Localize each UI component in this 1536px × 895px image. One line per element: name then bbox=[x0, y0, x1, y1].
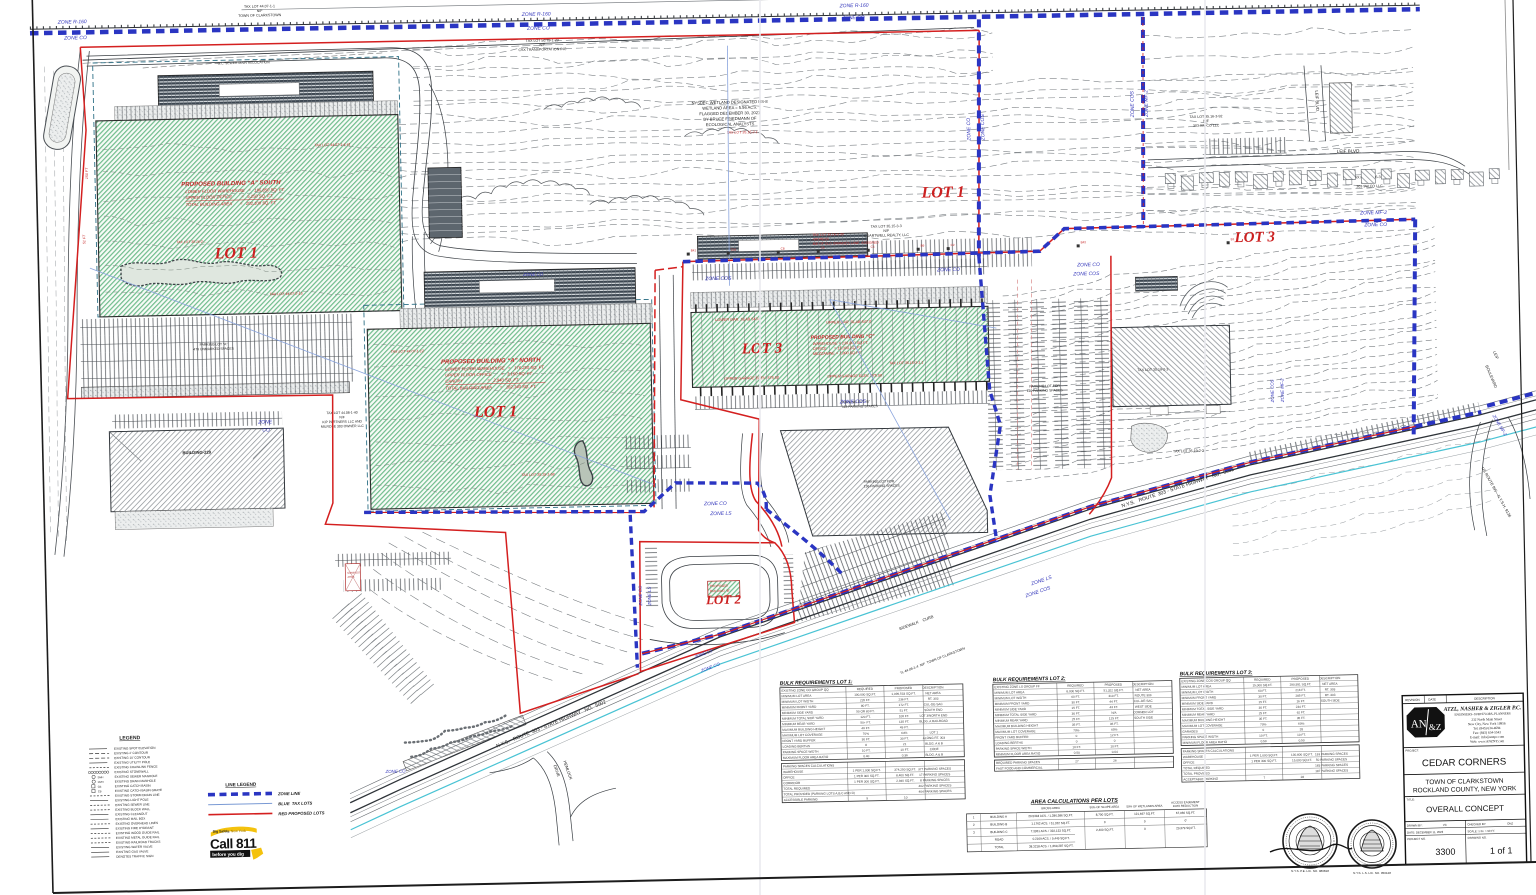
svg-text:216 FT.: 216 FT. bbox=[1295, 688, 1306, 692]
svg-text:DESCRIPTION: DESCRIPTION bbox=[1319, 676, 1340, 680]
svg-text:16 FT.: 16 FT. bbox=[1296, 699, 1305, 703]
svg-text:310 FT.: 310 FT. bbox=[1108, 694, 1119, 698]
svg-text:DRAWN BY:: DRAWN BY: bbox=[1407, 823, 1423, 827]
svg-text:290,951 SQ.FT.: 290,951 SQ.FT. bbox=[1290, 682, 1312, 686]
svg-text:CUL-DE-SAC: CUL-DE-SAC bbox=[1134, 699, 1154, 703]
svg-text:TOTAL REQUIRED: TOTAL REQUIRED bbox=[1183, 766, 1211, 771]
svg-text:N.Y.S. P.E. LIC. NO. 080818: N.Y.S. P.E. LIC. NO. 080818 bbox=[1291, 869, 1329, 873]
svg-text:BLUE TAX LOTS: BLUE TAX LOTS bbox=[278, 801, 312, 807]
svg-text:TAX LOT 44.07-2-15: TAX LOT 44.07-2-15 bbox=[269, 292, 302, 297]
svg-text:MINIMUM LOT WIDTH: MINIMUM LOT WIDTH bbox=[995, 696, 1027, 701]
svg-text:1 PER 300 SQ.FT.: 1 PER 300 SQ.FT. bbox=[854, 779, 880, 784]
svg-text:MINIMUM SIDE YARD: MINIMUM SIDE YARD bbox=[782, 710, 814, 715]
svg-text:ZONE CO: ZONE CO bbox=[1076, 262, 1100, 268]
svg-text:1.1762 ACS. / 51,322 SQ.FT.: 1.1762 ACS. / 51,322 SQ.FT. bbox=[1031, 821, 1070, 826]
svg-text:0.40: 0.40 bbox=[863, 754, 869, 758]
svg-text:OFFICE: OFFICE bbox=[1183, 760, 1194, 764]
svg-text:1 PER 1,000 SQ.FT.: 1 PER 1,000 SQ.FT. bbox=[853, 768, 881, 773]
svg-text:MAXIMUM LOT COVERAGE: MAXIMUM LOT COVERAGE bbox=[782, 733, 822, 738]
svg-text:MINIMUM LOT AREA: MINIMUM LOT AREA bbox=[1181, 684, 1212, 689]
svg-text:234 FT.: 234 FT. bbox=[1296, 705, 1307, 709]
svg-text:35 FT.: 35 FT. bbox=[1072, 723, 1081, 727]
svg-text:28: 28 bbox=[1300, 727, 1304, 731]
svg-text:Dig Safely. New York: Dig Safely. New York bbox=[213, 829, 246, 834]
svg-text:GROSS AREA: GROSS AREA bbox=[1041, 806, 1060, 810]
svg-text:10 FT.: 10 FT. bbox=[1072, 745, 1081, 749]
svg-text:10: 10 bbox=[904, 795, 908, 799]
svg-text:MINIMUM LOT AREA: MINIMUM LOT AREA bbox=[781, 694, 812, 699]
svg-text:0’: 0’ bbox=[1185, 818, 1188, 822]
svg-text:8,700 SQ.FT.: 8,700 SQ.FT. bbox=[1096, 812, 1114, 816]
svg-text:236 FT.: 236 FT. bbox=[898, 697, 909, 701]
svg-text:GARAGES: GARAGES bbox=[1182, 729, 1197, 733]
svg-text:136 PARKING SPACES: 136 PARKING SPACES bbox=[864, 484, 901, 489]
svg-text:LOT 3/NORTH END: LOT 3/NORTH END bbox=[920, 713, 949, 718]
svg-text:17 PARKING SPACES: 17 PARKING SPACES bbox=[919, 772, 950, 777]
svg-text:60 FT.: 60 FT. bbox=[1258, 689, 1267, 693]
svg-text:TAX LOT 35.16-2-...: TAX LOT 35.16-2-... bbox=[176, 240, 206, 245]
svg-text:LEGEND: LEGEND bbox=[119, 735, 140, 741]
svg-text:ACCEPTABLE PARKING: ACCEPTABLE PARKING bbox=[1183, 777, 1218, 782]
svg-text:30 FT.: 30 FT. bbox=[900, 736, 909, 740]
svg-text:LOT 1: LOT 1 bbox=[473, 403, 517, 421]
svg-text:0.50: 0.50 bbox=[1261, 739, 1267, 743]
svg-text:374,250 SQ.FT.: 374,250 SQ.FT. bbox=[894, 767, 916, 771]
svg-text:50+ FT.: 50+ FT. bbox=[860, 720, 871, 724]
svg-text:15 FT.: 15 FT. bbox=[1072, 706, 1081, 710]
svg-text:8,400 SQ.FT.: 8,400 SQ.FT. bbox=[896, 773, 914, 777]
svg-text:35 FT.: 35 FT. bbox=[1259, 717, 1268, 721]
svg-text:C8: C8 bbox=[781, 247, 785, 251]
svg-text:50% OF WETLANDS AREA: 50% OF WETLANDS AREA bbox=[1126, 804, 1162, 809]
svg-text:ZONE CO: ZONE CO bbox=[526, 25, 550, 31]
svg-text:MINIMUM LOT AREA: MINIMUM LOT AREA bbox=[994, 690, 1025, 695]
svg-text:CO: CO bbox=[262, 427, 270, 433]
svg-text:ZONE CO: ZONE CO bbox=[966, 118, 972, 142]
svg-text:43 FT.: 43 FT. bbox=[1109, 705, 1118, 709]
svg-text:29,379 SQ.FT.: 29,379 SQ.FT. bbox=[1176, 826, 1196, 830]
svg-text:MINIMUM REAR YARD: MINIMUM REAR YARD bbox=[995, 718, 1028, 723]
svg-text:LOT 1: LOT 1 bbox=[930, 730, 939, 734]
svg-text:150 FT: 150 FT bbox=[85, 167, 89, 179]
svg-text:NET AREA: NET AREA bbox=[1322, 682, 1338, 686]
svg-text:0.50: 0.50 bbox=[1299, 738, 1305, 742]
svg-text:N/F: N/F bbox=[339, 415, 345, 419]
svg-text:C4: C4 bbox=[871, 245, 875, 249]
svg-text:N/F: N/F bbox=[1203, 119, 1210, 123]
svg-text:ZONE R-160: ZONE R-160 bbox=[839, 3, 869, 10]
svg-text:125 FT.: 125 FT. bbox=[1109, 716, 1120, 720]
svg-text:NET AREA: NET AREA bbox=[925, 691, 941, 695]
svg-text:10 FT.: 10 FT. bbox=[862, 748, 871, 752]
svg-text:DESCRIPTION: DESCRIPTION bbox=[1132, 682, 1153, 686]
svg-text:51 FT: 51 FT bbox=[82, 234, 86, 244]
svg-text:10 FT.: 10 FT. bbox=[1297, 733, 1306, 737]
svg-text:WAREHOUSE: WAREHOUSE bbox=[783, 770, 803, 774]
svg-text:ZONE CO: ZONE CO bbox=[384, 769, 406, 774]
svg-text:62 FT.: 62 FT. bbox=[1297, 710, 1306, 714]
svg-text:BUILDING B: BUILDING B bbox=[990, 822, 1007, 826]
svg-text:TAX LOT 35.15-1-58: TAX LOT 35.15-1-58 bbox=[521, 472, 554, 477]
svg-text:PROJECT NO.: PROJECT NO. bbox=[1407, 837, 1426, 841]
svg-text:CB: CB bbox=[98, 789, 102, 793]
svg-text:30 FT.: 30 FT. bbox=[1072, 711, 1081, 715]
svg-text:N.Y.S. L.S. LIC. NO. 050128: N.Y.S. L.S. LIC. NO. 050128 bbox=[1353, 871, 1391, 875]
svg-text:ZONE LS: ZONE LS bbox=[647, 587, 652, 607]
svg-text:TAX LOT 35.15-2-1: TAX LOT 35.15-2-1 bbox=[727, 130, 758, 135]
svg-text:LOADING BERTHS: LOADING BERTHS bbox=[783, 744, 810, 749]
svg-text:MINIMUM REAR YARD: MINIMUM REAR YARD bbox=[1182, 712, 1215, 717]
svg-text:DATE: DATE bbox=[1428, 697, 1436, 701]
svg-text:MAXIMUM LOT COVERAGE: MAXIMUM LOT COVERAGE bbox=[1182, 723, 1222, 728]
svg-text:BUILDING-229: BUILDING-229 bbox=[182, 450, 211, 456]
svg-text:Call 811: Call 811 bbox=[210, 836, 258, 852]
svg-text:1 PER 1,000 SQ.FT.: 1 PER 1,000 SQ.FT. bbox=[1250, 753, 1278, 758]
svg-text:10 FT.: 10 FT. bbox=[900, 748, 909, 752]
svg-text:ZONE MF-2: ZONE MF-2 bbox=[1143, 90, 1150, 118]
svg-text:PROJECT:: PROJECT: bbox=[1405, 748, 1419, 752]
svg-text:65%: 65% bbox=[1111, 727, 1118, 731]
svg-text:0.2169 ACS. / 9,449 SQ.FT.: 0.2169 ACS. / 9,449 SQ.FT. bbox=[1033, 836, 1070, 841]
svg-text:C2: C2 bbox=[951, 243, 955, 247]
svg-text:AN: AN bbox=[1411, 718, 1427, 730]
svg-text:2,400 SQ.FT.: 2,400 SQ.FT. bbox=[1096, 828, 1114, 832]
svg-text:35 FT.: 35 FT. bbox=[1110, 722, 1119, 726]
svg-text:ZONE CO: ZONE CO bbox=[1363, 222, 1387, 228]
svg-text:TAX LOT 35.15-3-1.1: TAX LOT 35.15-3-1.1 bbox=[889, 361, 923, 366]
svg-text:FRONT YARD BUFFER: FRONT YARD BUFFER bbox=[995, 735, 1029, 740]
svg-text:DESCRIPTION: DESCRIPTION bbox=[1474, 696, 1495, 700]
svg-text:80 FT.: 80 FT. bbox=[861, 704, 870, 708]
svg-text:DNZ: DNZ bbox=[1507, 821, 1513, 825]
svg-text:25 FT.: 25 FT. bbox=[1259, 711, 1268, 715]
svg-text:NET AREA: NET AREA bbox=[1135, 688, 1151, 692]
svg-text:MINIMUM FRONT YARD: MINIMUM FRONT YARD bbox=[995, 701, 1030, 706]
svg-text:220 FT.: 220 FT. bbox=[860, 698, 871, 702]
svg-text:50 OR 80 FT.: 50 OR 80 FT. bbox=[856, 709, 875, 713]
svg-text:RT. 303: RT. 303 bbox=[1325, 693, 1336, 697]
svg-text:PROPOSED: PROPOSED bbox=[710, 584, 729, 588]
svg-text:B9: B9 bbox=[921, 244, 925, 248]
svg-text:0.36: 0.36 bbox=[902, 753, 908, 757]
svg-text:ZONE LINE: ZONE LINE bbox=[277, 791, 301, 796]
svg-text:49 FT.: 49 FT. bbox=[900, 725, 909, 729]
svg-text:377 PARKING SPACES: 377 PARKING SPACES bbox=[918, 767, 951, 772]
svg-text:100,000 SQ.FT.: 100,000 SQ.FT. bbox=[854, 692, 876, 696]
svg-text:12 FT.: 12 FT. bbox=[1110, 733, 1119, 737]
svg-text:15,000 SQ.FT.: 15,000 SQ.FT. bbox=[1252, 683, 1272, 687]
svg-text:N/F: N/F bbox=[539, 43, 546, 47]
svg-text:26: 26 bbox=[1113, 758, 1117, 762]
svg-text:CEDAR CORNERS: CEDAR CORNERS bbox=[1422, 757, 1506, 770]
svg-text:ZONE LS: ZONE LS bbox=[709, 511, 732, 517]
svg-text:2,940 SQ.FT.: 2,940 SQ.FT. bbox=[896, 779, 914, 783]
svg-text:BUILDING A: BUILDING A bbox=[990, 815, 1007, 819]
svg-text:70%: 70% bbox=[1260, 722, 1267, 726]
svg-text:187 PARKING SPACES: 187 PARKING SPACES bbox=[1315, 768, 1348, 773]
svg-text:CUL-DE-SAC: CUL-DE-SAC bbox=[924, 702, 944, 706]
svg-text:35 FT.: 35 FT. bbox=[1297, 716, 1306, 720]
svg-text:ZONE R-160: ZONE R-160 bbox=[521, 11, 551, 18]
svg-text:133 PARKING SPACES: 133 PARKING SPACES bbox=[1315, 752, 1348, 757]
svg-text:50% OF SLOPE AREA: 50% OF SLOPE AREA bbox=[1090, 805, 1120, 810]
svg-text:B43: B43 bbox=[1081, 240, 1087, 244]
svg-text:REVISION: REVISION bbox=[1405, 698, 1419, 702]
svg-text:404 PARKING SPACES: 404 PARKING SPACES bbox=[919, 789, 952, 794]
svg-text:MINIMUM FRONT YARD: MINIMUM FRONT YARD bbox=[1182, 695, 1217, 700]
svg-text:30 FT.: 30 FT. bbox=[1259, 706, 1268, 710]
svg-text:OFFICE: OFFICE bbox=[783, 775, 794, 779]
svg-text:110 PARKING SPACES: 110 PARKING SPACES bbox=[1027, 388, 1064, 393]
svg-text:DMH: DMH bbox=[98, 780, 104, 784]
svg-text:LINE LEGEND: LINE LEGEND bbox=[225, 782, 257, 788]
svg-text:C6: C6 bbox=[821, 246, 825, 250]
svg-text:MAXIMUM LOT COVERAGE: MAXIMUM LOT COVERAGE bbox=[995, 729, 1035, 734]
svg-text:ZONE CO: ZONE CO bbox=[703, 501, 727, 507]
svg-text:ZONE COS: ZONE COS bbox=[704, 276, 732, 283]
svg-text:1 of 1: 1 of 1 bbox=[1490, 845, 1513, 855]
svg-text:before you dig: before you dig bbox=[212, 851, 244, 857]
svg-text:67,066 SQ.FT.: 67,066 SQ.FT. bbox=[1176, 811, 1196, 815]
svg-text:BLDG. A & B: BLDG. A & B bbox=[925, 753, 943, 757]
svg-text:15 FT.: 15 FT. bbox=[1258, 700, 1267, 704]
svg-text:ZONE COS: ZONE COS bbox=[1129, 90, 1136, 118]
svg-text:BLDG. A RAILROAD: BLDG. A RAILROAD bbox=[919, 719, 948, 724]
svg-text:MINIMUM LOT WIDTH: MINIMUM LOT WIDTH bbox=[1182, 690, 1214, 695]
svg-text:ROUTE 303: ROUTE 303 bbox=[1135, 693, 1152, 697]
svg-text:0.50: 0.50 bbox=[1074, 751, 1080, 755]
svg-text:ZONE CO: ZONE CO bbox=[841, 15, 865, 21]
svg-text:CB: CB bbox=[98, 785, 102, 789]
svg-text:AREA: AREA bbox=[347, 575, 354, 579]
svg-text:30 FT.: 30 FT. bbox=[1071, 700, 1080, 704]
svg-text:WAREHOUSE: WAREHOUSE bbox=[1183, 755, 1203, 759]
svg-text:PARKING SPACE WIDTH: PARKING SPACE WIDTH bbox=[996, 746, 1032, 751]
svg-text:TAX LOT 44.07-1-4.41: TAX LOT 44.07-1-4.41 bbox=[314, 143, 350, 148]
svg-text:ZONE COS: ZONE COS bbox=[1270, 379, 1276, 403]
svg-text:CODE: CODE bbox=[930, 747, 939, 751]
svg-text:LOT 1: LOT 1 bbox=[213, 245, 257, 263]
svg-text:PROPOSED: PROPOSED bbox=[895, 686, 913, 690]
svg-text:402 PARKING SPACES: 402 PARKING SPACES bbox=[918, 783, 951, 788]
svg-text:REQUIRED: REQUIRED bbox=[857, 687, 874, 691]
svg-text:MINIMUM FRONT YARD: MINIMUM FRONT YARD bbox=[782, 705, 817, 710]
svg-text:303 9W CO LLC: 303 9W CO LLC bbox=[1193, 123, 1220, 128]
svg-text:TAX LOT 35.19-2-3: TAX LOT 35.19-2-3 bbox=[1137, 368, 1168, 373]
svg-text:30 FT.: 30 FT. bbox=[1258, 694, 1267, 698]
svg-text:C16: C16 bbox=[731, 248, 737, 252]
svg-text:ZONE MF-2: ZONE MF-2 bbox=[1279, 378, 1285, 403]
svg-text:TITLE:: TITLE: bbox=[1406, 797, 1415, 801]
svg-text:LEIF BLVD.: LEIF BLVD. bbox=[1337, 148, 1361, 153]
svg-text:PROPOSED: PROPOSED bbox=[1291, 677, 1309, 681]
svg-text:ZONE CO: ZONE CO bbox=[638, 585, 643, 607]
svg-text:SMH: SMH bbox=[98, 775, 104, 779]
svg-text:&Z: &Z bbox=[1429, 722, 1442, 732]
svg-text:BUILDING C: BUILDING C bbox=[990, 830, 1008, 834]
svg-text:121,697 SQ.FT.: 121,697 SQ.FT. bbox=[1134, 811, 1155, 815]
svg-text:RT. 303: RT. 303 bbox=[928, 697, 939, 701]
svg-text:1 PER 300 SQ.FT.: 1 PER 300 SQ.FT. bbox=[1251, 759, 1277, 764]
svg-text:ZONE COS: ZONE COS bbox=[1072, 271, 1100, 278]
svg-text:LOT 2: LOT 2 bbox=[705, 592, 742, 608]
svg-text:10 FT.: 10 FT. bbox=[1110, 744, 1119, 748]
svg-text:44 FT.: 44 FT. bbox=[1109, 699, 1118, 703]
svg-text:TAX LOT 35.19-2-2: TAX LOT 35.19-2-2 bbox=[1173, 449, 1204, 454]
svg-text:DESCRIPTION: DESCRIPTION bbox=[922, 685, 943, 689]
svg-text:ACCESSIBLE PARKING: ACCESSIBLE PARKING bbox=[784, 797, 819, 802]
svg-text:MINIMUM SIDE YARD: MINIMUM SIDE YARD bbox=[1182, 701, 1214, 706]
svg-text:ALONG RT. 303: ALONG RT. 303 bbox=[923, 736, 946, 740]
svg-text:51 FT.: 51 FT. bbox=[900, 708, 909, 712]
svg-text:1 PER 300 SQ.FT.: 1 PER 300 SQ.FT. bbox=[854, 774, 880, 779]
svg-text:PARKING SPACE WIDTH: PARKING SPACE WIDTH bbox=[783, 750, 819, 755]
svg-text:MINIMUM LOT WIDTH: MINIMUM LOT WIDTH bbox=[782, 699, 814, 704]
svg-text:RED PROPOSED LOTS: RED PROPOSED LOTS bbox=[278, 810, 324, 816]
svg-text:DENOTES TRAFFIC SIGN: DENOTES TRAFFIC SIGN bbox=[116, 854, 153, 859]
svg-text:183 PARKING SPACES: 183 PARKING SPACES bbox=[1315, 763, 1348, 768]
svg-text:COMPOST: COMPOST bbox=[347, 570, 361, 574]
svg-text:21: 21 bbox=[903, 742, 907, 746]
svg-text:303 9W CO LLC: 303 9W CO LLC bbox=[1356, 184, 1383, 189]
svg-text:70%: 70% bbox=[1073, 728, 1080, 732]
svg-text:CORNER LOT: CORNER LOT bbox=[1133, 710, 1153, 714]
svg-text:60%: 60% bbox=[1298, 722, 1305, 726]
svg-text:CORRIDOR: CORRIDOR bbox=[783, 781, 801, 785]
svg-text:REQUIRED: REQUIRED bbox=[1254, 677, 1271, 681]
svg-text:Web: www.ANZNY.com: Web: www.ANZNY.com bbox=[1470, 739, 1504, 744]
svg-text:ECOLOGICAL ANALYSTS: ECOLOGICAL ANALYSTS bbox=[706, 121, 755, 127]
svg-text:285 FT.: 285 FT. bbox=[1295, 694, 1306, 698]
svg-text:30 FT.: 30 FT. bbox=[862, 737, 871, 741]
svg-text:VC: VC bbox=[1443, 823, 1447, 827]
svg-text:15,000 SQ.FT.: 15,000 SQ.FT. bbox=[1292, 758, 1312, 762]
svg-text:1,099,533 SQ.FT.: 1,099,533 SQ.FT. bbox=[891, 691, 915, 696]
svg-text:ZONE CO: ZONE CO bbox=[936, 267, 960, 273]
svg-text:REQUIRED: REQUIRED bbox=[1067, 683, 1084, 687]
svg-text:ZONE CO: ZONE CO bbox=[522, 272, 544, 277]
svg-text:TOTAL: TOTAL bbox=[995, 845, 1005, 849]
svg-text:ROAD: ROAD bbox=[995, 837, 1005, 841]
svg-text:ZONE: ZONE bbox=[257, 419, 273, 425]
svg-text:SOUTH END: SOUTH END bbox=[924, 708, 943, 712]
svg-text:27: 27 bbox=[1075, 759, 1079, 763]
svg-text:172 FT.: 172 FT. bbox=[899, 703, 910, 707]
svg-text:CHECKED BY:: CHECKED BY: bbox=[1467, 822, 1486, 826]
svg-text:MINIMUM REAR YARD: MINIMUM REAR YARD bbox=[782, 722, 815, 727]
svg-text:49 FT.: 49 FT. bbox=[861, 726, 870, 730]
svg-text:FRONT YARD BUFFER: FRONT YARD BUFFER bbox=[782, 738, 816, 743]
svg-text:BLDG. A & B: BLDG. A & B bbox=[925, 741, 943, 745]
svg-text:B41: B41 bbox=[691, 248, 697, 252]
svg-text:ZONE CO: ZONE CO bbox=[63, 35, 87, 41]
svg-text:LOT 1: LOT 1 bbox=[920, 184, 964, 202]
svg-text:100% REDUCTION: 100% REDUCTION bbox=[1173, 803, 1198, 808]
svg-text:7.3951 ACS. / 322,133 SQ.FT.: 7.3951 ACS. / 322,133 SQ.FT. bbox=[1031, 828, 1072, 833]
svg-text:135 FT.: 135 FT. bbox=[899, 720, 910, 724]
svg-text:PARKING SPACE WIDTH: PARKING SPACE WIDTH bbox=[1182, 735, 1218, 740]
svg-text:OVERALL CONCEPT: OVERALL CONCEPT bbox=[1426, 804, 1504, 815]
svg-text:SCALE: 1 IN. = 50 FT.: SCALE: 1 IN. = 50 FT. bbox=[1467, 829, 1495, 834]
svg-text:70%: 70% bbox=[863, 732, 870, 736]
svg-text:WEST SIDE: WEST SIDE bbox=[1135, 704, 1152, 708]
svg-text:LOT 3: LOT 3 bbox=[1233, 229, 1275, 246]
svg-text:ZONE MF-2: ZONE MF-2 bbox=[1359, 210, 1387, 217]
svg-text:28: 28 bbox=[1301, 775, 1305, 779]
svg-text:51,322 SQ.FT.: 51,322 SQ.FT. bbox=[1103, 688, 1123, 692]
svg-text:8 PARKING SPACES: 8 PARKING SPACES bbox=[920, 778, 950, 783]
svg-text:TAX LOT 44.07-1-12: TAX LOT 44.07-1-12 bbox=[391, 349, 424, 354]
svg-text:3300: 3300 bbox=[1435, 847, 1455, 857]
svg-text:64%: 64% bbox=[901, 731, 908, 735]
svg-text:130,800 SQ.FT.: 130,800 SQ.FT. bbox=[1291, 752, 1313, 756]
svg-text:PROPOSED: PROPOSED bbox=[1105, 683, 1123, 687]
svg-text:RT. 303: RT. 303 bbox=[1325, 687, 1336, 691]
svg-text:50 PARKING SPACES: 50 PARKING SPACES bbox=[1316, 757, 1347, 762]
svg-text:108 FT.: 108 FT. bbox=[899, 714, 910, 718]
svg-text:25 FT.: 25 FT. bbox=[1072, 717, 1081, 721]
svg-text:TOTAL PROVIDED: TOTAL PROVIDED bbox=[1183, 771, 1210, 776]
svg-text:N/F: N/F bbox=[883, 229, 890, 233]
svg-text:ZONE R-160: ZONE R-160 bbox=[57, 19, 87, 26]
svg-text:10 FT.: 10 FT. bbox=[1259, 734, 1268, 738]
svg-text:LOT 3: LOT 3 bbox=[741, 341, 783, 358]
svg-text:0.04: 0.04 bbox=[1112, 750, 1118, 754]
svg-text:60 FT.: 60 FT. bbox=[1071, 695, 1080, 699]
svg-text:SOUTH SIDE: SOUTH SIDE bbox=[1134, 716, 1153, 720]
svg-text:LOADING BERTHS: LOADING BERTHS bbox=[996, 741, 1023, 746]
svg-text:MINIMUM SIDE YARD: MINIMUM SIDE YARD bbox=[995, 707, 1027, 712]
svg-text:8,000 SQ.FT.: 8,000 SQ.FT. bbox=[1066, 689, 1084, 693]
svg-text:ZONE COS: ZONE COS bbox=[980, 114, 987, 142]
svg-text:DATE: DECEMBER 11, 2023: DATE: DECEMBER 11, 2023 bbox=[1407, 830, 1444, 835]
svg-text:120 FT.: 120 FT. bbox=[860, 715, 871, 719]
svg-text:DRAWING NO.: DRAWING NO. bbox=[1468, 835, 1487, 839]
svg-text:ZONE COS: ZONE COS bbox=[839, 399, 867, 406]
svg-text:TOTAL REQUIRED: TOTAL REQUIRED bbox=[783, 786, 811, 791]
svg-text:SOUTH SIDE: SOUTH SIDE bbox=[1321, 698, 1340, 702]
